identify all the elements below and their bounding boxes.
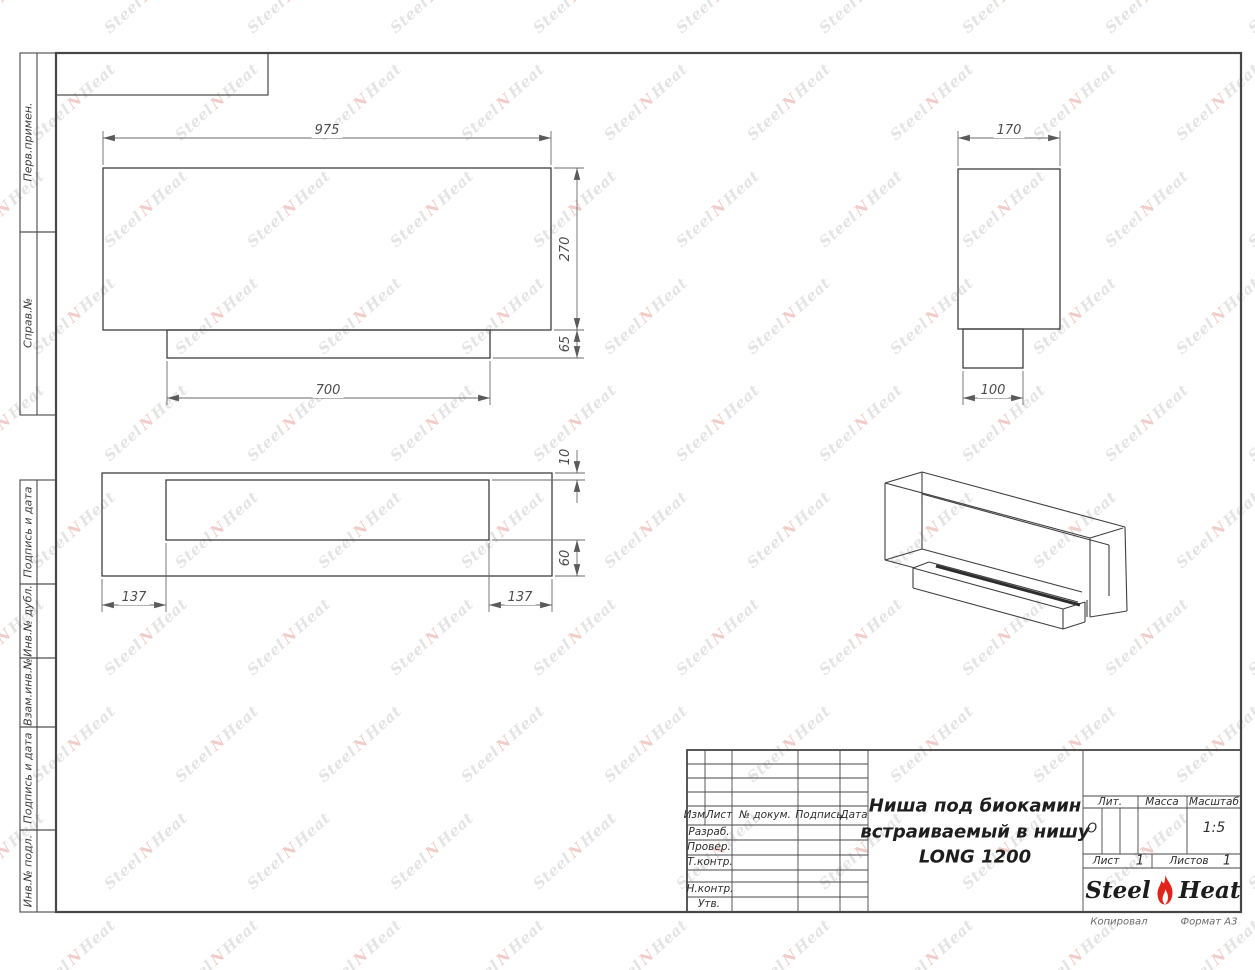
logo-text-steel: Steel <box>1085 877 1150 904</box>
copied-label: Копировал <box>1090 917 1147 928</box>
drawing-title-line3: LONG 1200 <box>919 847 1031 868</box>
drawing-sheet: SteelNHeatSteelNHeatSteelNHeatSteelNHeat… <box>0 0 1255 970</box>
mass-label: Масса <box>1145 796 1178 808</box>
row-nkontr: Н.контр. <box>687 883 734 895</box>
dim-front-height: 270 <box>559 234 573 265</box>
row-utv: Утв. <box>698 898 720 910</box>
sheet-value: 1 <box>1136 854 1144 869</box>
margin-label-podpis-data-1: Подпись и дата <box>22 486 35 577</box>
flame-icon <box>1153 874 1177 906</box>
dim-front-base-width: 700 <box>313 384 344 398</box>
margin-label-podpis-data-2: Подпись и дата <box>22 732 35 823</box>
row-tkontr: Т.контр. <box>687 856 733 868</box>
side-view <box>958 169 1060 368</box>
th-date: Дата <box>840 809 867 821</box>
th-list: Лист <box>706 809 733 821</box>
row-prover: Провер. <box>687 841 731 853</box>
scale-value: 1:5 <box>1203 820 1226 836</box>
top-view <box>102 473 552 576</box>
top-left-box <box>56 53 268 95</box>
frame <box>56 53 1241 912</box>
th-doc: № докум. <box>739 809 791 821</box>
margin-label-vzam-inv: Взам.инв.№ <box>22 658 35 726</box>
dim-top-inset: 10 <box>559 446 573 469</box>
dim-side-width: 170 <box>994 124 1025 138</box>
sheets-value: 1 <box>1223 854 1231 869</box>
steel-heat-logo: Steel Heat <box>1085 869 1241 911</box>
dim-front-width: 975 <box>312 124 343 138</box>
dim-right-inset: 137 <box>505 591 536 605</box>
drawing-title-line1: Ниша под биокамин <box>869 796 1081 817</box>
logo-text-heat: Heat <box>1179 877 1241 904</box>
dim-front-base-height: 65 <box>559 333 573 356</box>
margin-label-inv-dubl: Инв.№ дубл. <box>22 585 35 657</box>
margin-label-inv-podl: Инв.№ подл. <box>22 835 35 907</box>
lit-label: Лит. <box>1098 796 1122 808</box>
margin-label-sprav-no: Справ.№ <box>22 298 35 348</box>
sheet-label: Лист <box>1093 855 1120 867</box>
front-view <box>103 168 551 358</box>
lit-value: О <box>1087 822 1097 837</box>
th-sign: Подпись <box>795 809 842 821</box>
isometric-view <box>885 472 1127 629</box>
row-razrab: Разраб. <box>688 826 729 838</box>
format-label: Формат А3 <box>1181 917 1238 928</box>
margin-label-perv-primen: Перв.примен. <box>22 102 35 181</box>
dim-bottom-inset: 60 <box>559 547 573 570</box>
th-izm: Изм. <box>684 809 709 821</box>
dim-side-base-width: 100 <box>978 384 1009 398</box>
scale-label: Масштаб <box>1189 796 1239 808</box>
sheets-label: Листов <box>1169 855 1208 867</box>
dim-left-inset: 137 <box>119 591 150 605</box>
drawing-title-line2: встраиваемый в нишу <box>860 822 1089 843</box>
